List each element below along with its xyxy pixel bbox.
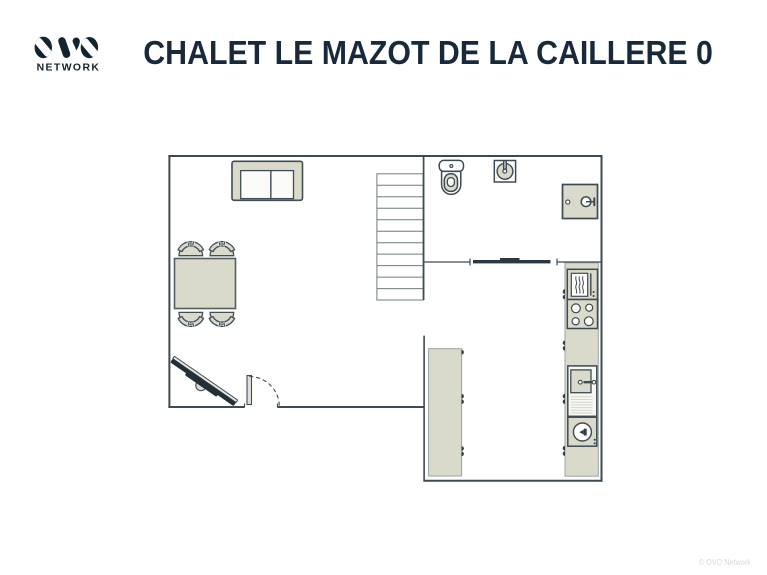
svg-text:© OVO Network: © OVO Network [699, 557, 752, 567]
svg-text:CHALET LE MAZOT DE LA CAILLERE: CHALET LE MAZOT DE LA CAILLERE 0 [143, 34, 713, 71]
svg-text:NETWORK: NETWORK [37, 62, 100, 73]
